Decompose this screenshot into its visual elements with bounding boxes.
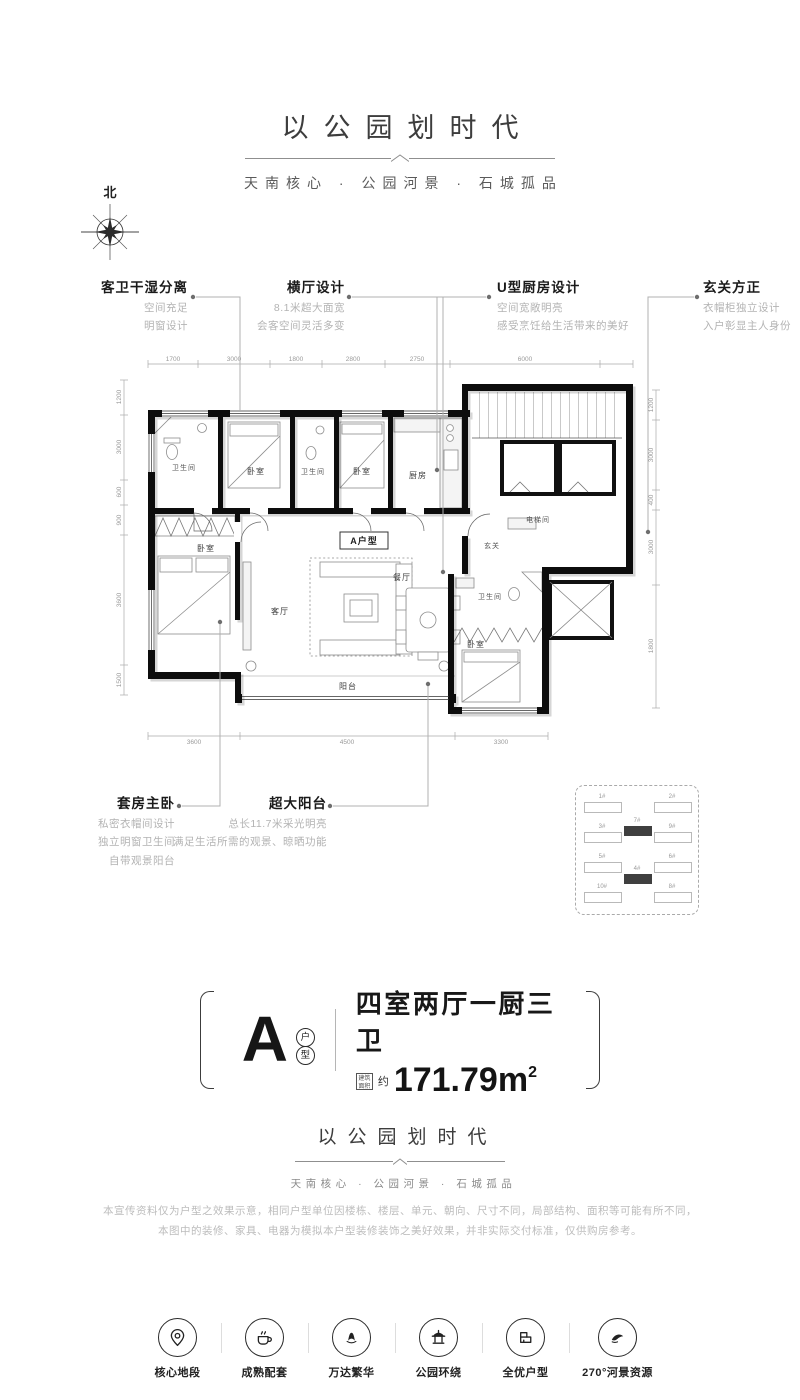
svg-text:4500: 4500 bbox=[340, 739, 355, 746]
svg-text:1500: 1500 bbox=[116, 672, 123, 687]
callout-desc: 独立明窗卫生间 bbox=[55, 837, 175, 848]
room-living: 客厅 bbox=[271, 606, 289, 616]
callout-title: 玄关方正 bbox=[703, 281, 798, 295]
callout-desc: 衣帽柜独立设计 bbox=[703, 303, 798, 314]
callout-title: U型厨房设计 bbox=[497, 281, 672, 295]
room-bed1: 卧室 bbox=[247, 466, 265, 476]
room-balcony: 阳台 bbox=[339, 681, 357, 691]
approx-label: 约 bbox=[378, 1073, 389, 1089]
svg-text:1800: 1800 bbox=[289, 356, 304, 363]
compass: 北 bbox=[80, 182, 140, 268]
callout-desc: 自带观景阳台 bbox=[55, 856, 175, 867]
footer-brand: 以公园划时代 天南核心 · 公园河景 · 石城孤品 bbox=[0, 1122, 800, 1191]
feature-core-location: 核心地段 bbox=[135, 1318, 221, 1380]
svg-text:3000: 3000 bbox=[648, 539, 655, 554]
room-bath3: 卫生间 bbox=[478, 592, 502, 601]
brand-title: 以公园划时代 bbox=[0, 106, 800, 145]
coffee-cup-icon bbox=[245, 1318, 284, 1357]
svg-text:3300: 3300 bbox=[494, 739, 509, 746]
right-bracket bbox=[586, 991, 600, 1089]
disclaimer-line: 本图中的装修、家具、电器为模拟本户型装修装饰之美好效果，并非实际交付标准，仅供购… bbox=[0, 1222, 800, 1242]
area-label-box: 建筑面积 bbox=[356, 1073, 373, 1090]
callout-title: 客卫干湿分离 bbox=[40, 281, 188, 295]
feature-mature-amenities: 成熟配套 bbox=[222, 1318, 308, 1380]
room-dining: 餐厅 bbox=[393, 573, 411, 582]
svg-text:6000: 6000 bbox=[518, 356, 533, 363]
svg-text:3000: 3000 bbox=[116, 439, 123, 454]
room-bath1: 卫生间 bbox=[172, 463, 196, 472]
keyplan-building-highlight: 4# bbox=[624, 874, 650, 882]
callout-desc: 8.1米超大面宽 bbox=[197, 303, 345, 314]
keyplan-building: 3# bbox=[584, 832, 620, 841]
callout-desc: 空间充足 bbox=[40, 303, 188, 314]
keyplan-building: 9# bbox=[654, 832, 690, 841]
left-bracket bbox=[200, 991, 214, 1089]
river-view-icon bbox=[598, 1318, 637, 1357]
callout-desc: 明窗设计 bbox=[40, 321, 188, 332]
room-kitchen: 厨房 bbox=[409, 470, 427, 480]
brand-divider-line bbox=[245, 154, 555, 162]
callout-desc: 私密衣帽间设计 bbox=[55, 819, 175, 830]
room-master-bed: 卧室 bbox=[197, 543, 215, 553]
unit-badge: A 户 型 四室两厅一厨三卫 建筑面积 约 171.79m2 bbox=[200, 984, 600, 1096]
divider-right bbox=[409, 158, 555, 159]
callout-desc: 空间宽敞明亮 bbox=[497, 303, 672, 314]
feature-river-view: 270°河景资源 bbox=[570, 1318, 666, 1380]
svg-text:3000: 3000 bbox=[648, 447, 655, 462]
svg-text:400: 400 bbox=[648, 494, 655, 505]
callout-wide-hall: 横厅设计 8.1米超大面宽 会客空间灵活多变 bbox=[197, 281, 345, 332]
feature-row: 核心地段 成熟配套 万达繁华 公园环绕 bbox=[0, 1318, 800, 1380]
svg-text:1800: 1800 bbox=[648, 638, 655, 653]
svg-text:900: 900 bbox=[116, 514, 123, 525]
svg-text:1700: 1700 bbox=[166, 356, 181, 363]
area-superscript: 2 bbox=[528, 1064, 537, 1081]
keyplan-building: 8# bbox=[654, 892, 690, 901]
feature-layout: 全优户型 bbox=[483, 1318, 569, 1380]
location-pin-icon bbox=[158, 1318, 197, 1357]
callout-title: 横厅设计 bbox=[197, 281, 345, 295]
keyplan-building: 5# bbox=[584, 862, 620, 871]
area-value: 171.79m2 bbox=[394, 1065, 537, 1096]
footer-brand-title: 以公园划时代 bbox=[0, 1122, 800, 1149]
svg-text:A户型: A户型 bbox=[350, 535, 378, 546]
compass-north-label: 北 bbox=[80, 182, 140, 201]
feature-wanda: 万达繁华 bbox=[309, 1318, 395, 1380]
svg-text:2750: 2750 bbox=[410, 356, 425, 363]
callout-desc: 总长11.7米采光明亮 bbox=[167, 819, 327, 830]
callout-desc: 入户彰显主人身份 bbox=[703, 321, 798, 332]
badge-text-block: 四室两厅一厨三卫 建筑面积 约 171.79m2 bbox=[356, 984, 563, 1096]
keyplan-building: 6# bbox=[654, 862, 690, 871]
callout-guest-bath: 客卫干湿分离 空间充足 明窗设计 bbox=[40, 281, 188, 332]
floorplan-icon bbox=[506, 1318, 545, 1357]
brand-header: 以公园划时代 天南核心 · 公园河景 · 石城孤品 bbox=[0, 106, 800, 193]
callout-foyer: 玄关方正 衣帽柜独立设计 入户彰显主人身份 bbox=[703, 281, 798, 332]
callout-balcony: 超大阳台 总长11.7米采光明亮 满足生活所需的观景、晾晒功能 bbox=[167, 797, 327, 848]
svg-text:2800: 2800 bbox=[346, 356, 361, 363]
callout-master-suite: 套房主卧 私密衣帽间设计 独立明窗卫生间 自带观景阳台 bbox=[55, 797, 175, 866]
divider-left bbox=[245, 158, 391, 159]
keyplan-building: 1# bbox=[584, 802, 620, 811]
svg-text:3600: 3600 bbox=[187, 739, 202, 746]
wanda-logo-icon bbox=[332, 1318, 371, 1357]
disclaimer: 本宣传资料仅为户型之效果示意，相同户型单位因楼栋、楼层、单元、朝向、尺寸不同，局… bbox=[0, 1202, 800, 1242]
svg-text:3000: 3000 bbox=[227, 356, 242, 363]
disclaimer-line: 本宣传资料仅为户型之效果示意，相同户型单位因楼栋、楼层、单元、朝向、尺寸不同，局… bbox=[0, 1202, 800, 1222]
footer-brand-subtitle: 天南核心 · 公园河景 · 石城孤品 bbox=[0, 1176, 800, 1191]
callout-u-kitchen: U型厨房设计 空间宽敞明亮 感受烹饪给生活带来的美好 bbox=[497, 281, 672, 332]
room-bed2: 卧室 bbox=[353, 466, 371, 476]
room-layout-text: 四室两厅一厨三卫 bbox=[356, 984, 563, 1058]
site-key-plan: 1# 3# 5# 10# 2# 9# 6# 8# 7# 4# bbox=[575, 785, 699, 915]
chevron-up-icon bbox=[391, 154, 409, 162]
badge-divider bbox=[335, 1009, 336, 1071]
keyplan-building-highlight: 7# bbox=[624, 826, 650, 834]
compass-rose-icon bbox=[80, 201, 140, 263]
keyplan-building: 2# bbox=[654, 802, 690, 811]
unit-type-circles: 户 型 bbox=[296, 1028, 315, 1065]
svg-text:1200: 1200 bbox=[648, 397, 655, 412]
room-bed3: 卧室 bbox=[467, 639, 485, 649]
room-elevator: 电梯间 bbox=[526, 515, 550, 524]
svg-text:3600: 3600 bbox=[116, 592, 123, 607]
unit-letter: A bbox=[242, 1011, 288, 1069]
callout-title: 套房主卧 bbox=[55, 797, 175, 811]
callout-title: 超大阳台 bbox=[167, 797, 327, 811]
poster-page: { "header": { "title": "以公园划时代", "subtit… bbox=[0, 0, 800, 1400]
room-bath2: 卫生间 bbox=[301, 467, 325, 476]
pavilion-icon bbox=[419, 1318, 458, 1357]
footer-divider-line bbox=[295, 1158, 505, 1165]
unit-tag: A户型 bbox=[340, 532, 388, 549]
chevron-up-icon bbox=[393, 1158, 407, 1165]
callout-desc: 会客空间灵活多变 bbox=[197, 321, 345, 332]
feature-park: 公园环绕 bbox=[396, 1318, 482, 1380]
svg-text:1200: 1200 bbox=[116, 389, 123, 404]
keyplan-building: 10# bbox=[584, 892, 620, 901]
callout-desc: 感受烹饪给生活带来的美好 bbox=[497, 321, 672, 332]
callout-desc: 满足生活所需的观景、晾晒功能 bbox=[167, 837, 327, 848]
room-foyer: 玄关 bbox=[484, 541, 500, 550]
floor-plan: 1700 3000 1800 2800 2750 6000 1200 3000 … bbox=[110, 350, 690, 750]
svg-text:600: 600 bbox=[116, 486, 123, 497]
